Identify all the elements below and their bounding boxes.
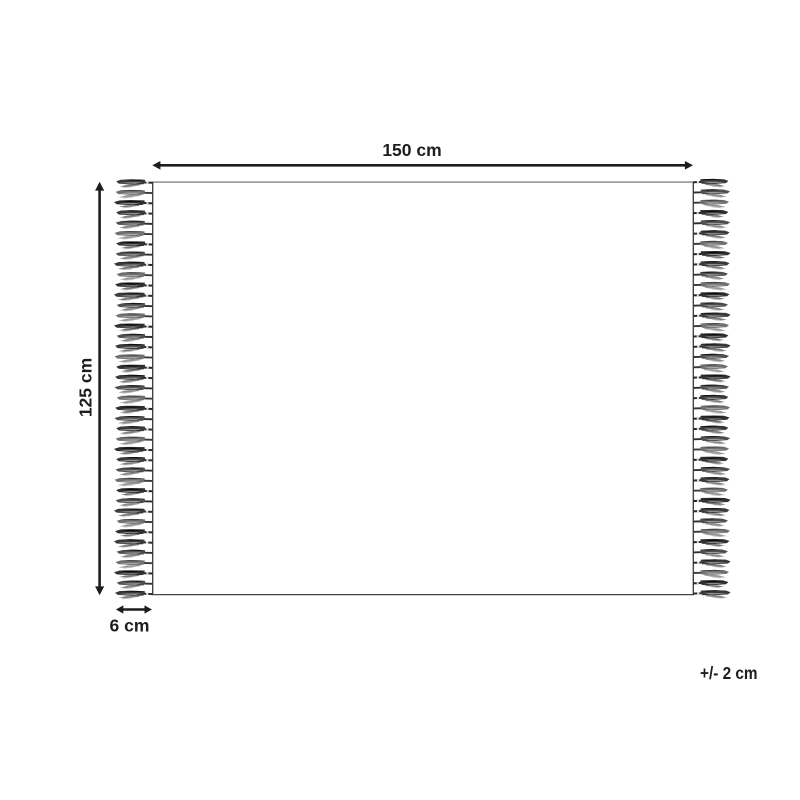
svg-text:125 cm: 125 cm	[76, 358, 96, 417]
svg-text:+/- 2 cm: +/- 2 cm	[700, 663, 758, 683]
svg-text:150 cm: 150 cm	[382, 140, 441, 160]
svg-text:6 cm: 6 cm	[110, 616, 150, 636]
